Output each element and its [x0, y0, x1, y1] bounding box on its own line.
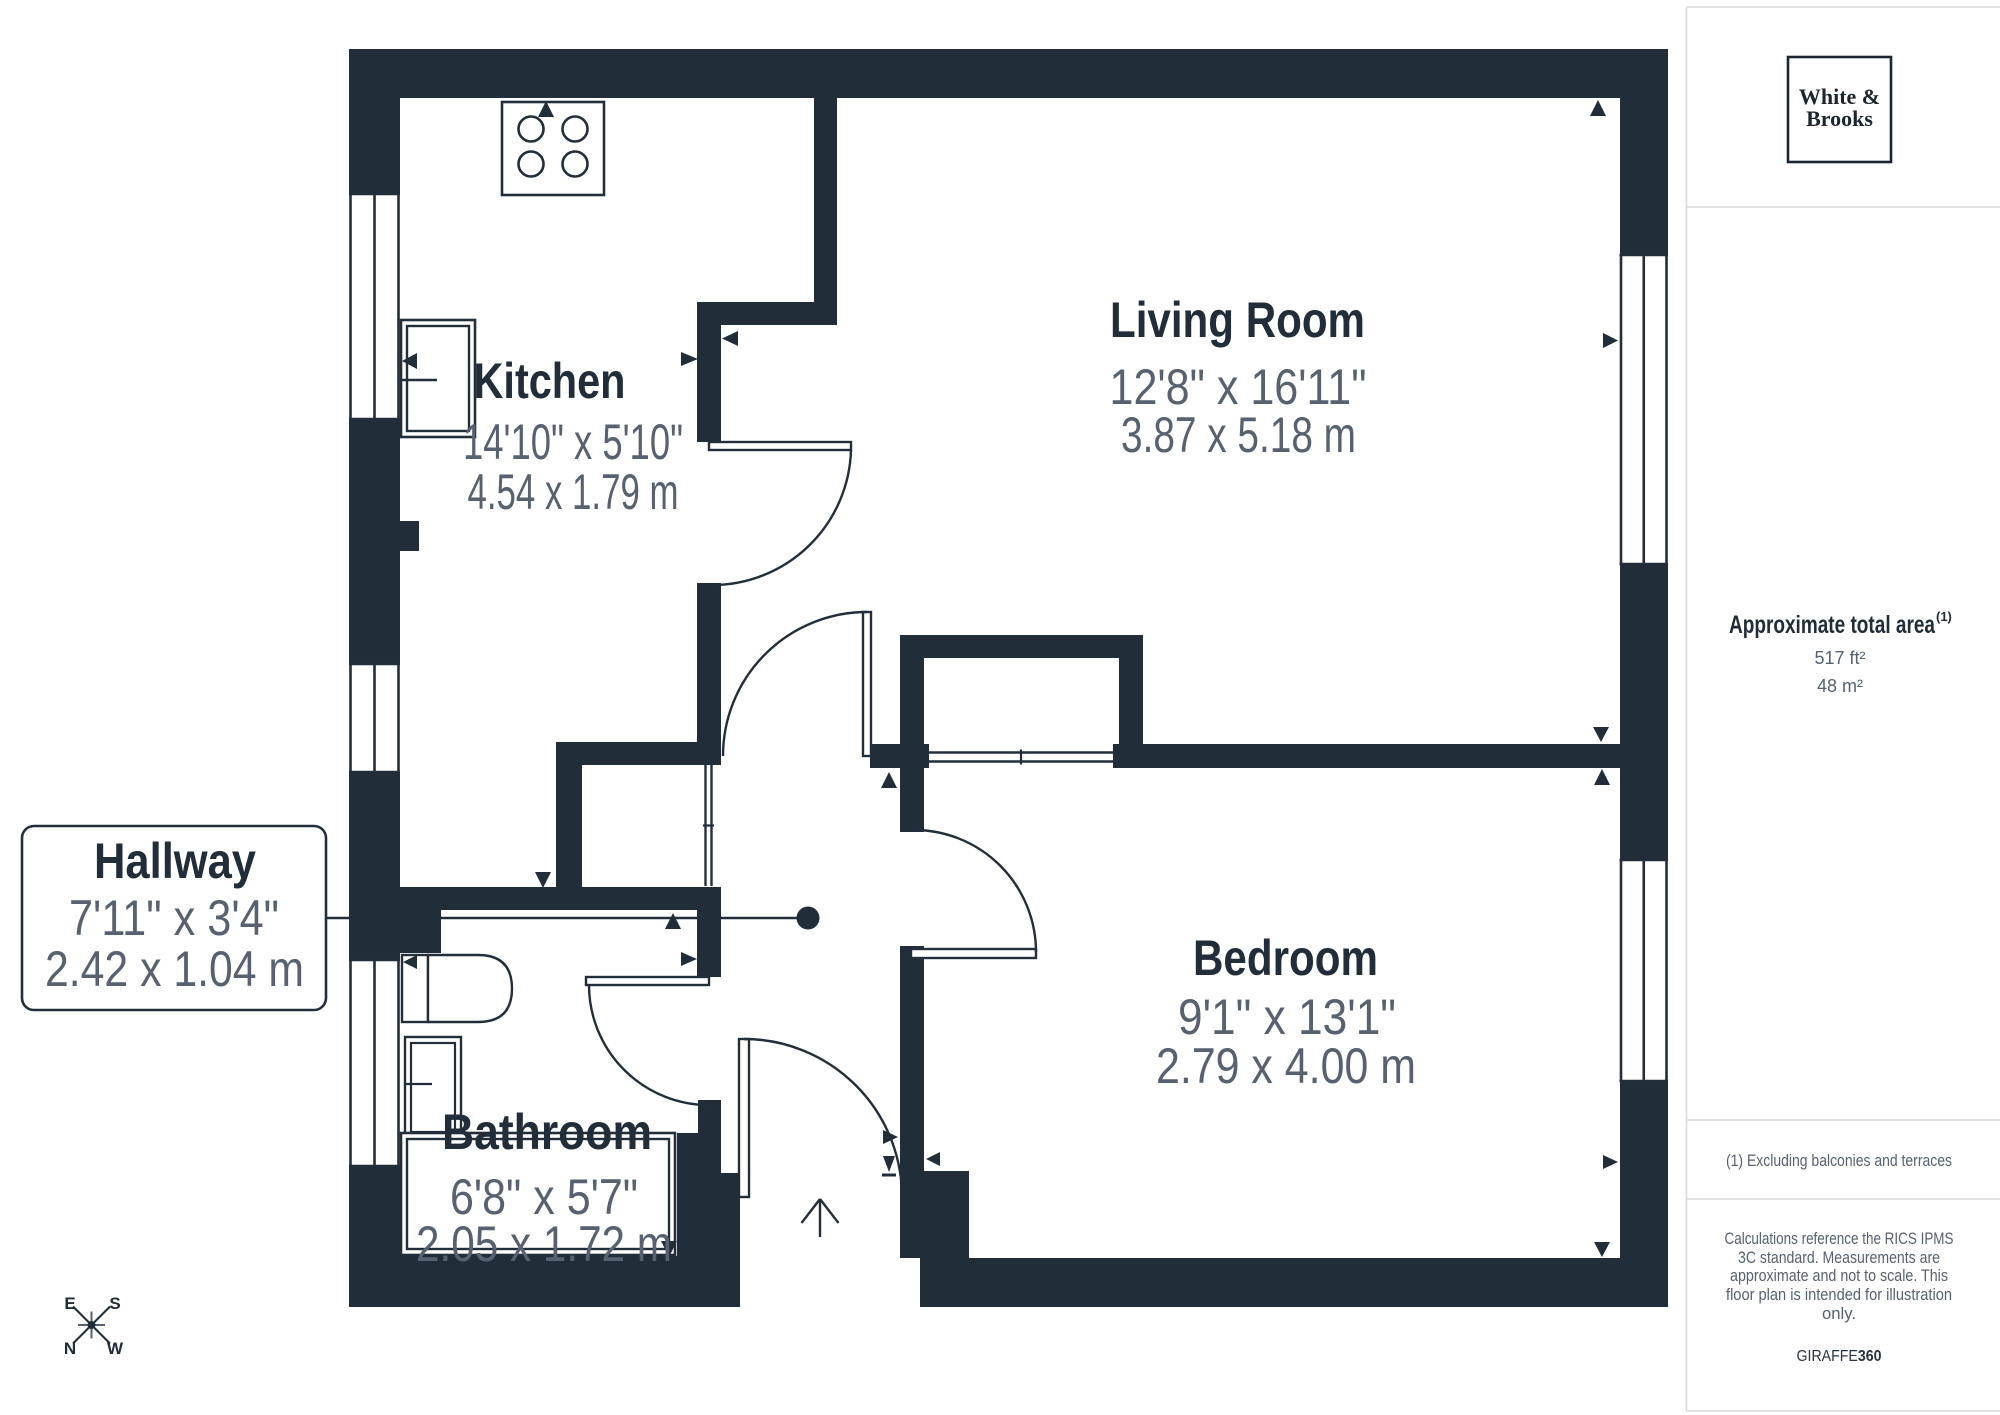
svg-text:Living Room: Living Room — [1110, 292, 1365, 348]
svg-text:(1): (1) — [1936, 609, 1952, 624]
svg-text:approximate and not to scale.: approximate and not to scale. This — [1730, 1266, 1948, 1285]
svg-text:floor plan is intended for ill: floor plan is intended for illustration — [1726, 1285, 1952, 1304]
svg-text:2.42 x 1.04 m: 2.42 x 1.04 m — [45, 941, 304, 997]
svg-text:E: E — [64, 1294, 75, 1313]
svg-text:9'1" x 13'1": 9'1" x 13'1" — [1178, 989, 1396, 1045]
svg-text:Calculations reference the RIC: Calculations reference the RICS IPMS — [1725, 1229, 1954, 1248]
svg-text:3C standard. Measurements are: 3C standard. Measurements are — [1738, 1248, 1940, 1267]
svg-text:2.79 x 4.00 m: 2.79 x 4.00 m — [1156, 1038, 1416, 1094]
svg-text:Hallway: Hallway — [94, 833, 256, 889]
svg-text:Brooks: Brooks — [1806, 106, 1873, 131]
svg-text:2.05 x 1.72 m: 2.05 x 1.72 m — [416, 1216, 672, 1272]
svg-text:Bathroom: Bathroom — [442, 1104, 652, 1160]
svg-text:only.: only. — [1822, 1304, 1856, 1323]
svg-text:3.87 x 5.18 m: 3.87 x 5.18 m — [1121, 407, 1356, 463]
svg-text:W: W — [107, 1339, 124, 1358]
svg-text:N: N — [64, 1339, 76, 1358]
svg-text:(1) Excluding balconies and te: (1) Excluding balconies and terraces — [1726, 1151, 1952, 1170]
svg-text:14'10" x 5'10": 14'10" x 5'10" — [463, 414, 683, 470]
svg-text:517 ft²: 517 ft² — [1814, 648, 1865, 668]
svg-text:48 m²: 48 m² — [1817, 676, 1863, 696]
svg-text:GIRAFFE360: GIRAFFE360 — [1797, 1348, 1882, 1365]
svg-text:Approximate total area: Approximate total area — [1729, 611, 1936, 639]
svg-text:S: S — [109, 1294, 120, 1313]
svg-text:7'11" x 3'4": 7'11" x 3'4" — [69, 890, 279, 946]
svg-text:Kitchen: Kitchen — [474, 353, 626, 409]
svg-text:Bedroom: Bedroom — [1193, 930, 1378, 986]
svg-text:4.54 x 1.79 m: 4.54 x 1.79 m — [468, 464, 679, 520]
